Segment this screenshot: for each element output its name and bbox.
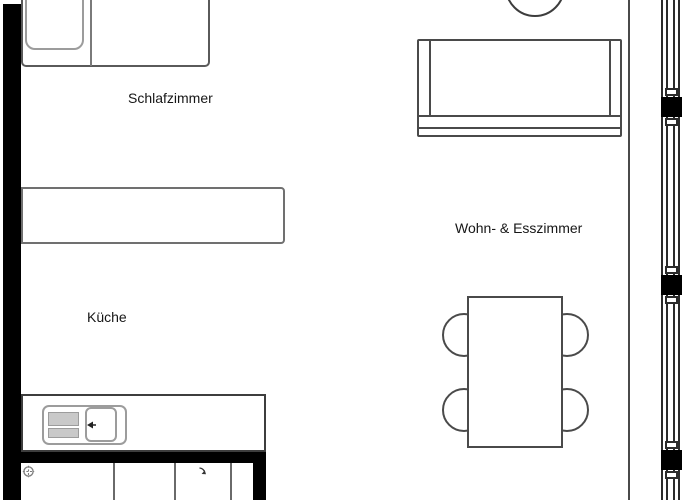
window-connector-tab <box>665 471 678 479</box>
strip-divider-1 <box>113 463 115 500</box>
bed-divider-line <box>90 0 92 66</box>
wall-left <box>3 4 21 500</box>
floor-plan: Schlafzimmer Küche Wohn- & Esszimmer <box>0 0 683 500</box>
sofa <box>417 39 622 137</box>
strip-divider-3 <box>230 463 232 500</box>
wall-bottom-stub <box>253 452 266 500</box>
window-pane-line <box>661 0 663 500</box>
sink-drainer-top <box>48 412 79 426</box>
window-connector-tab <box>665 266 678 274</box>
kitchen-counter <box>21 187 285 244</box>
window-connector-tab <box>665 88 678 96</box>
window-connector-tab <box>665 441 678 449</box>
sink-drainer-bottom <box>48 428 79 438</box>
window-pane-line <box>678 0 680 500</box>
window-connector-tab <box>665 118 678 126</box>
side-table-circle <box>505 0 565 17</box>
window-pane-line <box>666 0 668 500</box>
kitchen-label: Küche <box>87 309 127 325</box>
sofa-seat-line <box>417 115 622 117</box>
faucet-icon <box>86 419 96 431</box>
drain-icon <box>22 465 35 478</box>
window-pane-line <box>673 0 675 500</box>
window-post <box>661 97 682 117</box>
bed-pillow <box>25 0 84 50</box>
wall-bottom-horizontal <box>21 452 266 463</box>
window-post <box>661 275 682 295</box>
appliance-arrow-icon <box>198 466 208 476</box>
room-boundary-line <box>628 0 630 500</box>
window-wall <box>660 0 683 500</box>
dining-table <box>467 296 563 448</box>
living-dining-label: Wohn- & Esszimmer <box>455 220 582 236</box>
sofa-armrest-left-line <box>429 39 431 116</box>
window-connector-tab <box>665 296 678 304</box>
sofa-armrest-right-line <box>609 39 611 116</box>
bedroom-label: Schlafzimmer <box>128 90 213 106</box>
window-post <box>661 450 682 470</box>
strip-divider-2 <box>174 463 176 500</box>
sofa-cushion-line <box>417 127 622 129</box>
